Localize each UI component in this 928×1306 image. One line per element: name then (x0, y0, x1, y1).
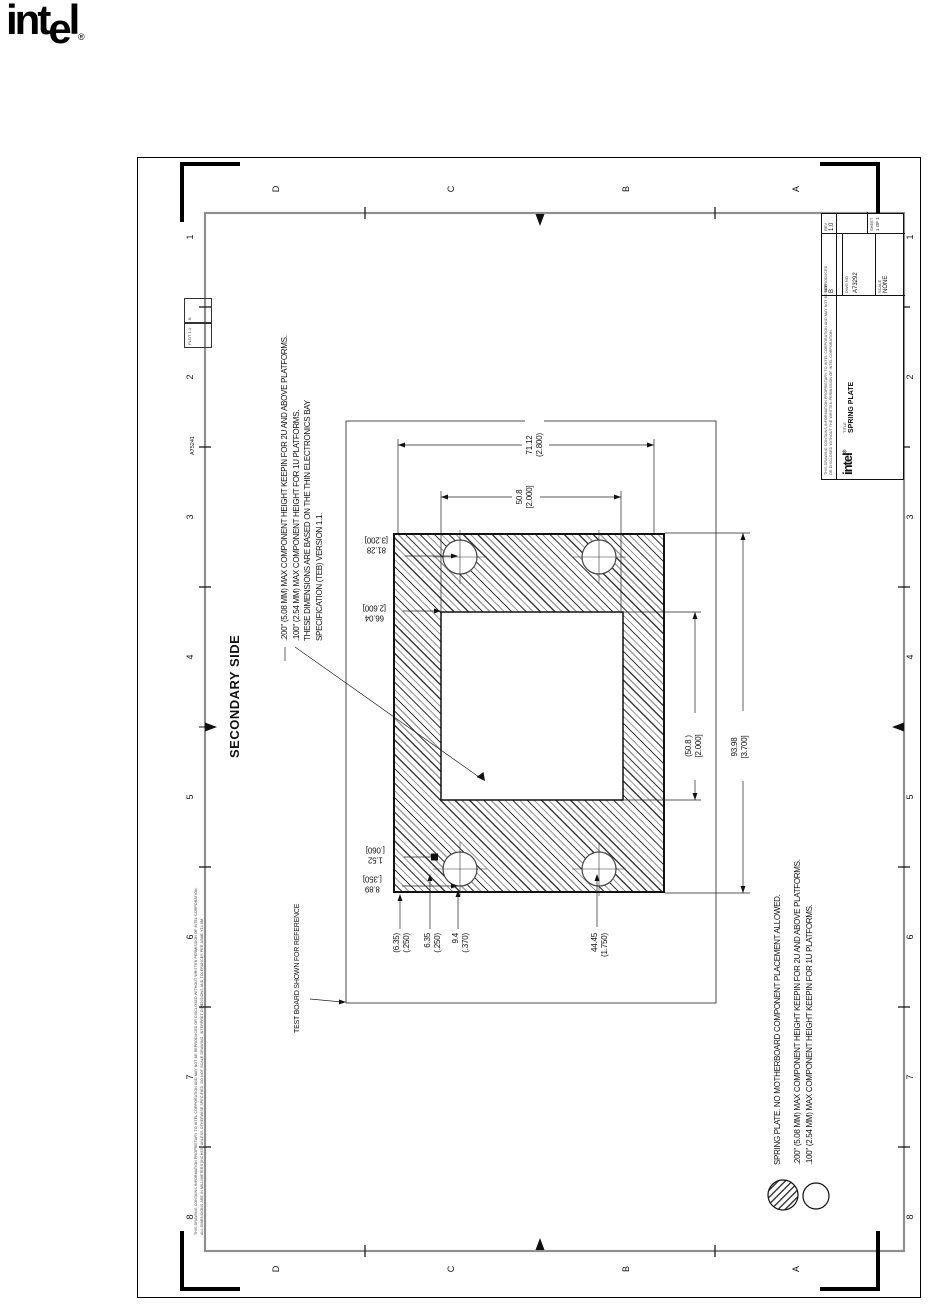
dim-edge-2: 6.35 (.250) (423, 933, 442, 981)
zone-letter: B (622, 1261, 632, 1277)
title-label: TITLE (842, 422, 847, 433)
zone-number: 8 (906, 1209, 916, 1225)
dim-inch: [2.600] (353, 604, 397, 614)
zone-number: 5 (186, 789, 196, 805)
fine-print-line: ALL DIMENSIONS ARE IN MILLIMETERS [INCHE… (200, 918, 205, 1235)
note-line: SPECIFICATION (TEB) VERSION 1.1. (314, 513, 326, 641)
rev-label: REV (823, 223, 828, 231)
dim-inch: (.370) (461, 933, 471, 981)
dwg-no-label: DWG NO (844, 276, 849, 293)
sheet-value: 1 OF 1 (875, 217, 880, 231)
note-line: .200" (5.08 MM) MAX COMPONENT HEIGHT KEE… (279, 335, 291, 641)
zone-number: 2 (186, 369, 196, 385)
zone-number: 3 (906, 509, 916, 525)
datum-square-icon (431, 854, 438, 861)
drawing-page: intel® (0, 0, 928, 1306)
drawing-title: SPRING PLATE (848, 382, 855, 433)
plot-box: PLOT 1:1 (184, 323, 212, 348)
size-label: SIZE (823, 284, 828, 293)
zone-letter: B (622, 181, 632, 197)
dim-inch: (.250) (402, 933, 412, 981)
intel-logo-dropped-e: e (48, 5, 68, 52)
zone-number: 4 (186, 649, 196, 665)
zone-letter: C (447, 181, 457, 197)
dim-inch: [2.000] (694, 716, 704, 776)
dim-thickness: 1.52 [.060] (354, 846, 398, 865)
test-board-label: TEST BOARD SHOWN FOR REFERENCE (294, 904, 302, 1033)
dim-inch: [.350] (351, 875, 395, 885)
zone-letter: C (447, 1261, 457, 1277)
secondary-side-label: SECONDARY SIDE (228, 635, 242, 758)
scale-label: SCALE (877, 280, 882, 293)
margin-doc-number: A75241 (190, 436, 196, 455)
zone-letter: D (272, 181, 282, 197)
plot-box-label: B (185, 299, 194, 322)
zone-number: 7 (906, 1069, 916, 1085)
dim-edge-3: 9.4 (.370) (451, 933, 470, 981)
dim-hole-span-2: 66.04 [2.600] (353, 604, 397, 623)
dim-edge-1: (6.35) (.250) (392, 933, 411, 981)
legend-open-circle-icon (803, 1183, 829, 1209)
corner-bracket-icon (182, 1231, 240, 1289)
dim-mm: (6.35) (392, 933, 402, 981)
dim-plate-width: 93.98 [3.700] (730, 717, 749, 777)
dim-mm: 8.89 (351, 884, 395, 894)
size-value: B (829, 289, 835, 293)
zone-number: 2 (906, 369, 916, 385)
dim-inch: [3.700] (740, 717, 750, 777)
zone-letter: A (792, 1261, 802, 1277)
title-block: THIS DRAWING CONTAINS INFORMATION PROPRI… (821, 213, 904, 480)
dim-cutout-height: 50.8 [2.000] (515, 465, 534, 529)
title-block-rev-cell: REV 1.0 SHEET 1 OF 1 (822, 212, 905, 234)
zone-number: 3 (186, 509, 196, 525)
dim-mm: 9.4 (451, 933, 461, 981)
plot-box: B (184, 298, 212, 323)
intel-logo-l: l (69, 0, 78, 43)
intel-logo-int: int (6, 0, 48, 43)
dim-hole-span: 81.28 [3.200] (355, 536, 399, 555)
rev-value: 1.0 (829, 223, 835, 231)
legend-hatched-circle-icon (768, 1180, 798, 1210)
registered-mark: ® (78, 32, 85, 42)
dim-inch: [.060] (354, 846, 398, 856)
dwg-no-value: A73292 (853, 272, 859, 293)
note-line: THESE DIMENSIONS ARE BASED ON THE THIN E… (302, 400, 314, 641)
dim-edge-4: 44.45 (1.750) (590, 933, 609, 981)
dim-mm: 1.52 (354, 855, 398, 865)
dim-cutout-width: (50.8 ) [2.000] (684, 716, 703, 776)
dim-mm: 6.35 (423, 933, 433, 981)
dim-mm: 66.04 (353, 613, 397, 623)
zone-number: 1 (906, 229, 916, 245)
fine-print-line: THIS DRAWING CONTAINS INFORMATION PROPRI… (194, 887, 199, 1235)
title-block-mid-cell: SIZE B DWG NO A73292 SCALE NONE (822, 234, 905, 296)
dim-mm: 50.8 (515, 465, 525, 529)
scale-value: NONE (883, 276, 889, 293)
zone-letter: A (792, 181, 802, 197)
dim-inch: (2.800) (535, 413, 545, 477)
zone-number: 5 (906, 789, 916, 805)
legend-note-line: .200" (5.08 MM) MAX COMPONENT HEIGHT KEE… (792, 859, 804, 1165)
legend-note-line: .100" (2.54 MM) MAX COMPONENT HEIGHT KEE… (804, 904, 816, 1165)
zone-number: 6 (906, 929, 916, 945)
zone-letter: D (272, 1261, 282, 1277)
corner-bracket-icon (820, 1231, 878, 1289)
note-line: .100" (2.54 MM) MAX COMPONENT HEIGHT FOR… (291, 410, 303, 641)
dim-inch: [2.000] (525, 465, 535, 529)
plate-cutout (441, 612, 623, 800)
dim-inch: [3.200] (355, 536, 399, 546)
dim-mm: 81.28 (355, 545, 399, 555)
dim-inch: (1.750) (600, 933, 610, 981)
dim-mm: 93.98 (730, 717, 740, 777)
title-block-intel-logo: intel® (840, 451, 855, 475)
sheet-label: SHEET (869, 218, 874, 231)
legend-note-line: SPRING PLATE. NO MOTHERBOARD COMPONENT P… (772, 894, 784, 1165)
intel-logo: intel® (6, 0, 77, 44)
dim-mm: (50.8 ) (684, 716, 694, 776)
dim-mm: 44.45 (590, 933, 600, 981)
drawing-sheet: D C B A D C B A 1 2 3 4 5 6 7 8 1 2 3 4 … (137, 157, 921, 1298)
zone-number: 1 (186, 229, 196, 245)
zone-number: 4 (906, 649, 916, 665)
dim-inch: (.250) (433, 933, 443, 981)
plot-box-label: PLOT 1:1 (185, 324, 194, 347)
dim-hole-diameter: 8.89 [.350] (351, 875, 395, 894)
title-block-notice: OR DISCLOSED WITHOUT THE WRITTEN PERMISS… (829, 329, 834, 475)
